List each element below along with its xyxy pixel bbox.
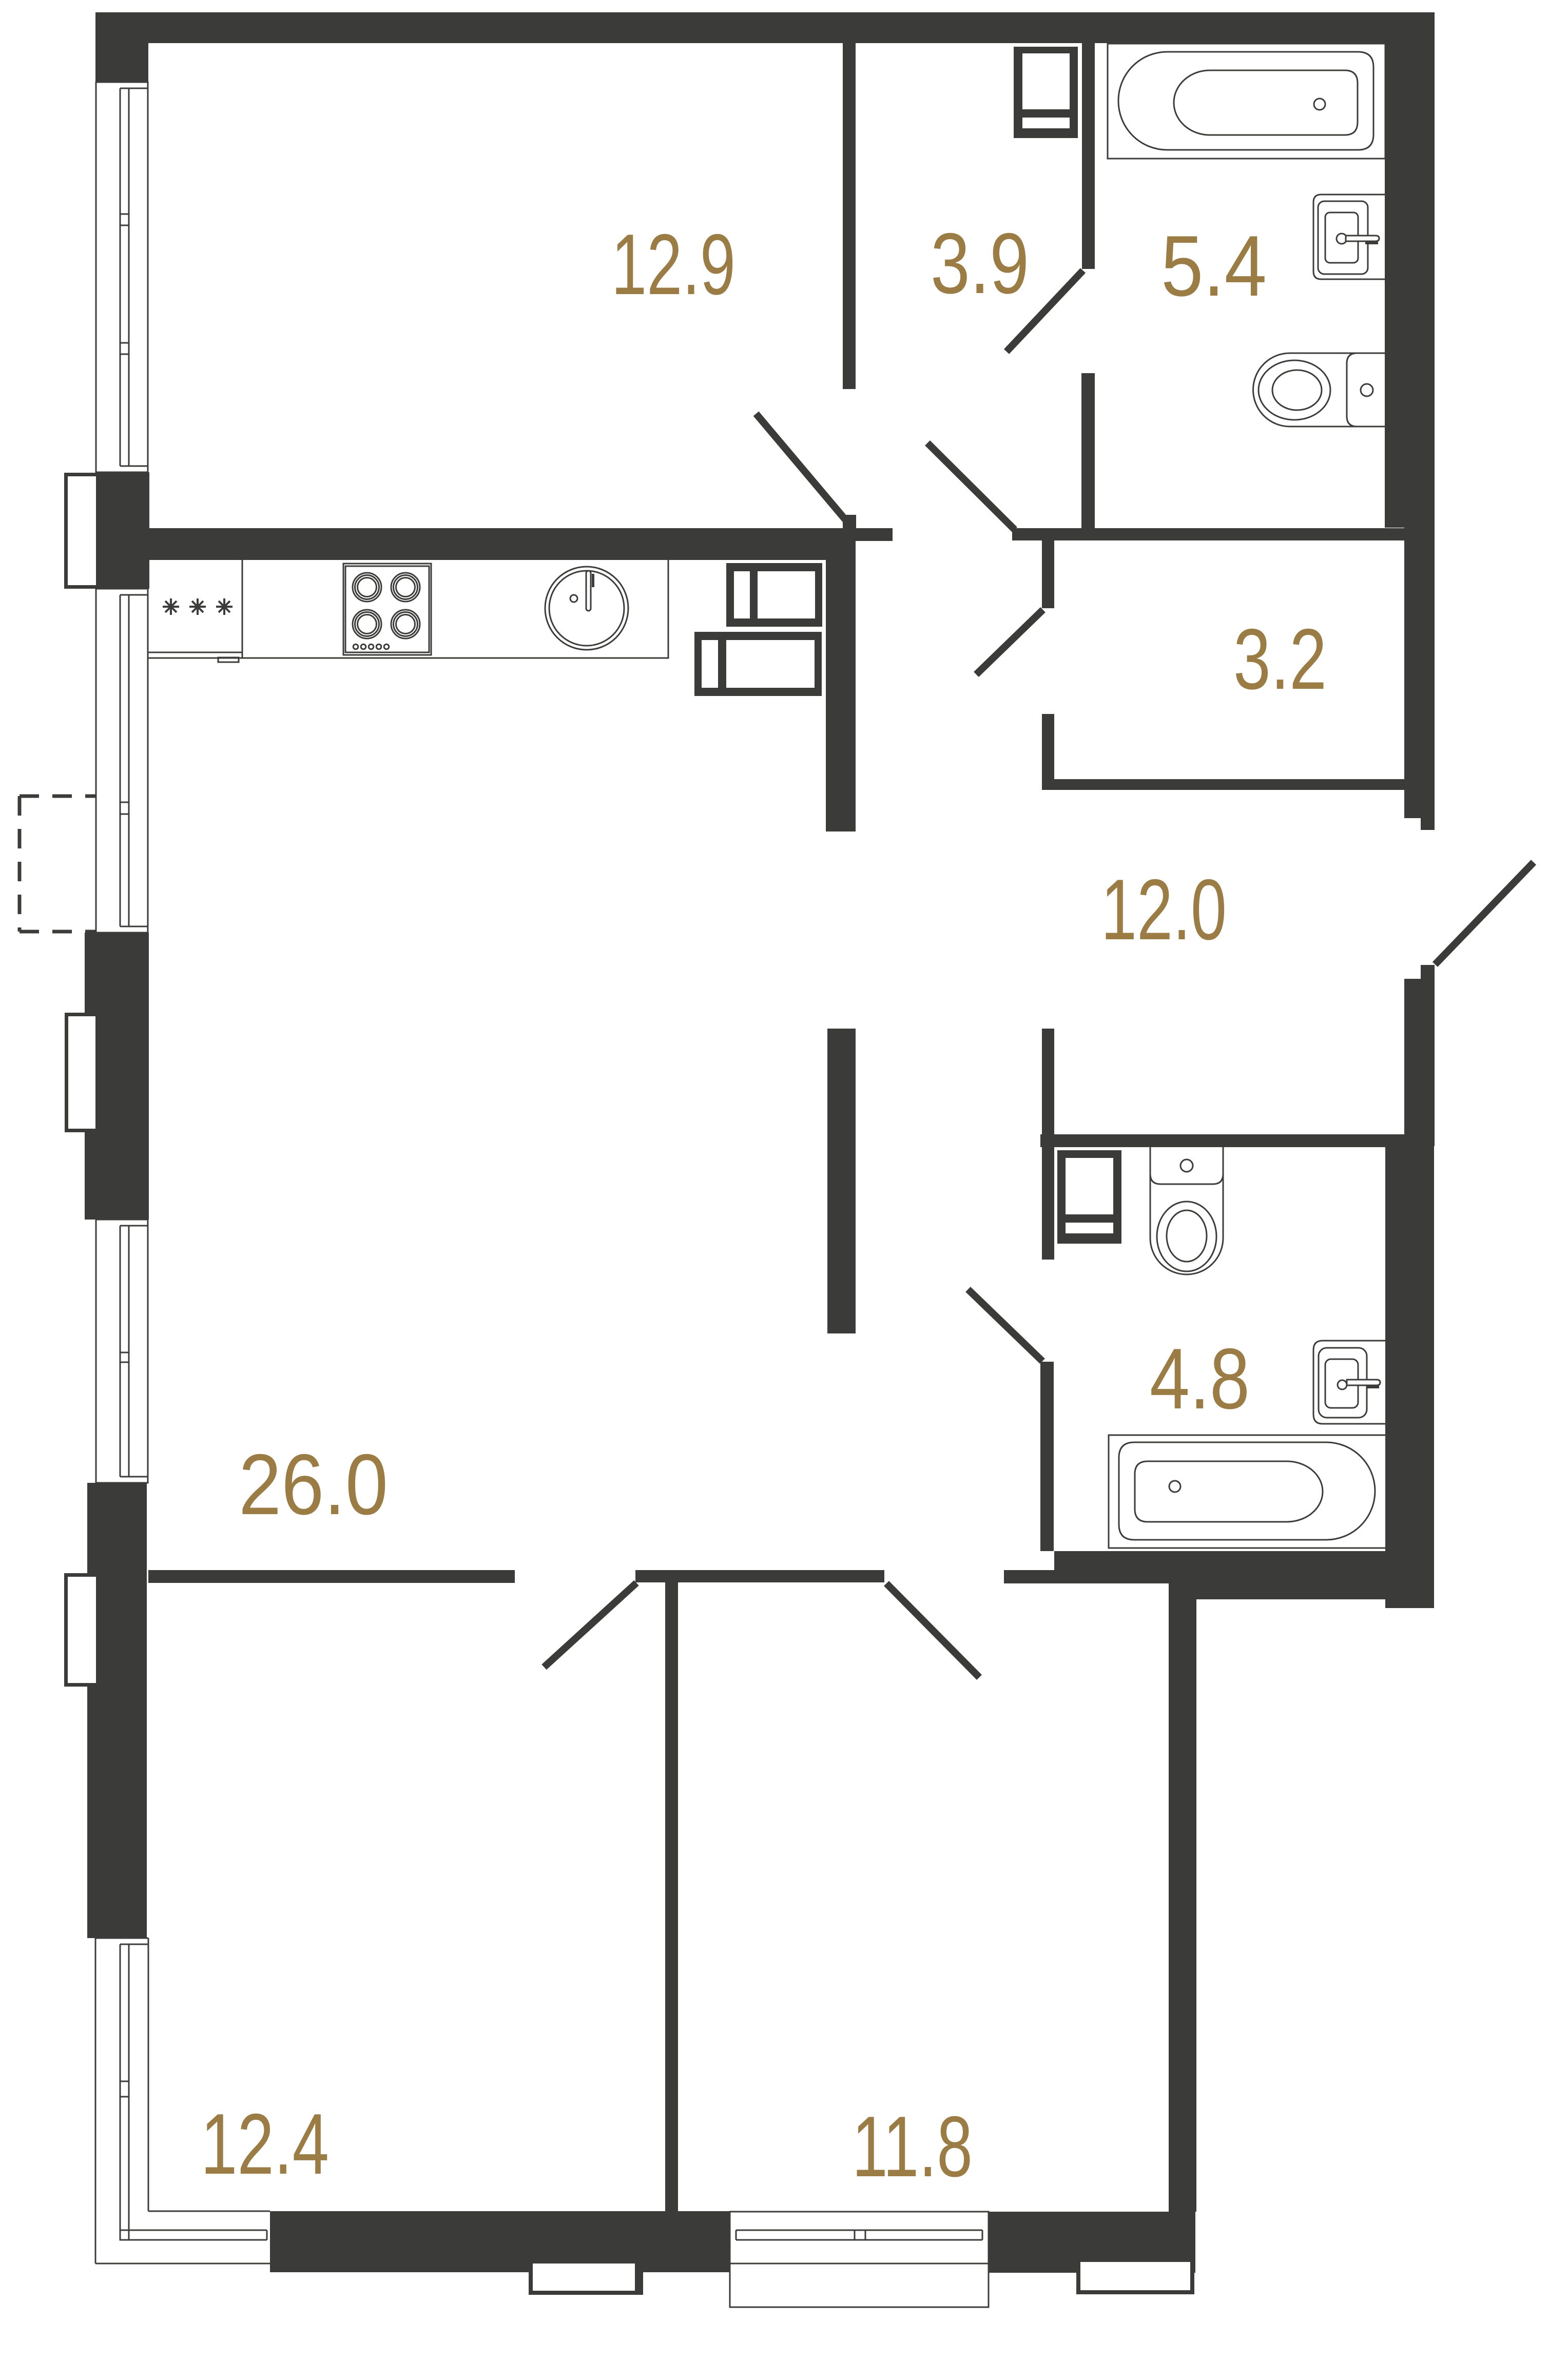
- svg-text:11.8: 11.8: [852, 2098, 973, 2195]
- svg-text:5.4: 5.4: [1161, 218, 1267, 314]
- svg-text:12.0: 12.0: [1101, 861, 1227, 958]
- svg-text:3.2: 3.2: [1233, 611, 1327, 707]
- svg-text:4.8: 4.8: [1150, 1330, 1250, 1427]
- svg-text:12.4: 12.4: [201, 2096, 329, 2192]
- svg-text:26.0: 26.0: [239, 1436, 388, 1533]
- svg-text:3.9: 3.9: [931, 215, 1029, 312]
- svg-text:12.9: 12.9: [611, 216, 735, 313]
